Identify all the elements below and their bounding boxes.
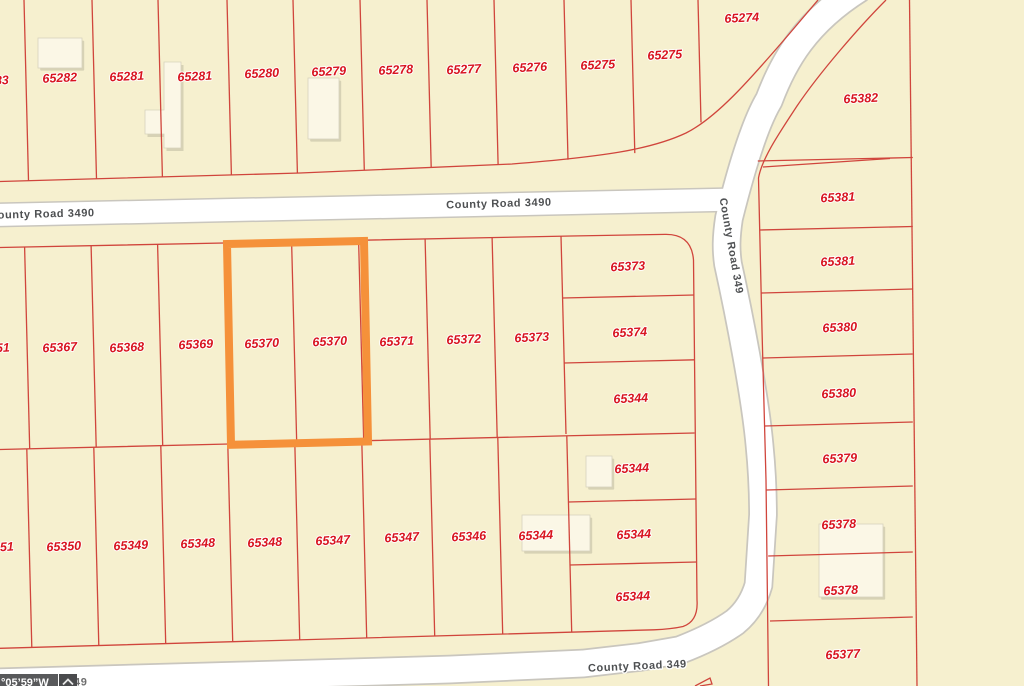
svg-text:65349: 65349 [113, 538, 148, 554]
svg-text:65370: 65370 [312, 334, 347, 350]
svg-text:65279: 65279 [311, 64, 346, 80]
svg-text:65348: 65348 [180, 536, 215, 552]
svg-text:65351: 65351 [0, 341, 10, 357]
svg-text:65370: 65370 [244, 336, 279, 352]
svg-text:65368: 65368 [109, 340, 144, 356]
svg-text:65277: 65277 [446, 62, 482, 78]
svg-text:65373: 65373 [514, 330, 549, 346]
svg-text:65344: 65344 [616, 527, 651, 543]
svg-text:65381: 65381 [820, 190, 855, 206]
svg-text:65274: 65274 [724, 10, 759, 26]
svg-text:65373: 65373 [610, 259, 645, 275]
svg-text:65347: 65347 [315, 533, 351, 549]
svg-text:65367: 65367 [42, 340, 78, 356]
svg-text:65378: 65378 [823, 583, 858, 599]
svg-text:65374: 65374 [612, 325, 647, 341]
svg-text:65377: 65377 [825, 647, 861, 663]
svg-text:65380: 65380 [821, 386, 856, 402]
svg-text:65281: 65281 [109, 69, 144, 85]
svg-text:65282: 65282 [42, 70, 77, 86]
svg-text:65351: 65351 [0, 540, 14, 556]
svg-text:65344: 65344 [615, 589, 650, 605]
svg-text:65371: 65371 [379, 334, 414, 350]
svg-text:65283: 65283 [0, 73, 9, 89]
svg-text:65280: 65280 [244, 66, 279, 82]
svg-text:65347: 65347 [384, 530, 420, 546]
svg-text:65380: 65380 [822, 320, 857, 336]
svg-text:65276: 65276 [512, 60, 548, 76]
svg-text:65278: 65278 [378, 62, 413, 78]
svg-text:65372: 65372 [446, 332, 481, 348]
svg-text:65350: 65350 [46, 539, 81, 555]
svg-text:65275: 65275 [647, 47, 683, 63]
svg-text:65378: 65378 [821, 517, 856, 533]
svg-text:65348: 65348 [247, 535, 282, 551]
svg-text:65382: 65382 [843, 91, 878, 107]
svg-text:65381: 65381 [820, 254, 855, 270]
svg-text:65346: 65346 [451, 529, 487, 545]
svg-text:°05’59”W: °05’59”W [1, 677, 49, 686]
svg-text:65369: 65369 [178, 337, 213, 353]
svg-text:65344: 65344 [614, 461, 649, 477]
svg-text:65344: 65344 [518, 528, 553, 544]
svg-text:65281: 65281 [177, 69, 212, 85]
svg-text:65275: 65275 [580, 57, 616, 73]
svg-text:65344: 65344 [613, 391, 648, 407]
svg-text:65379: 65379 [822, 451, 857, 467]
